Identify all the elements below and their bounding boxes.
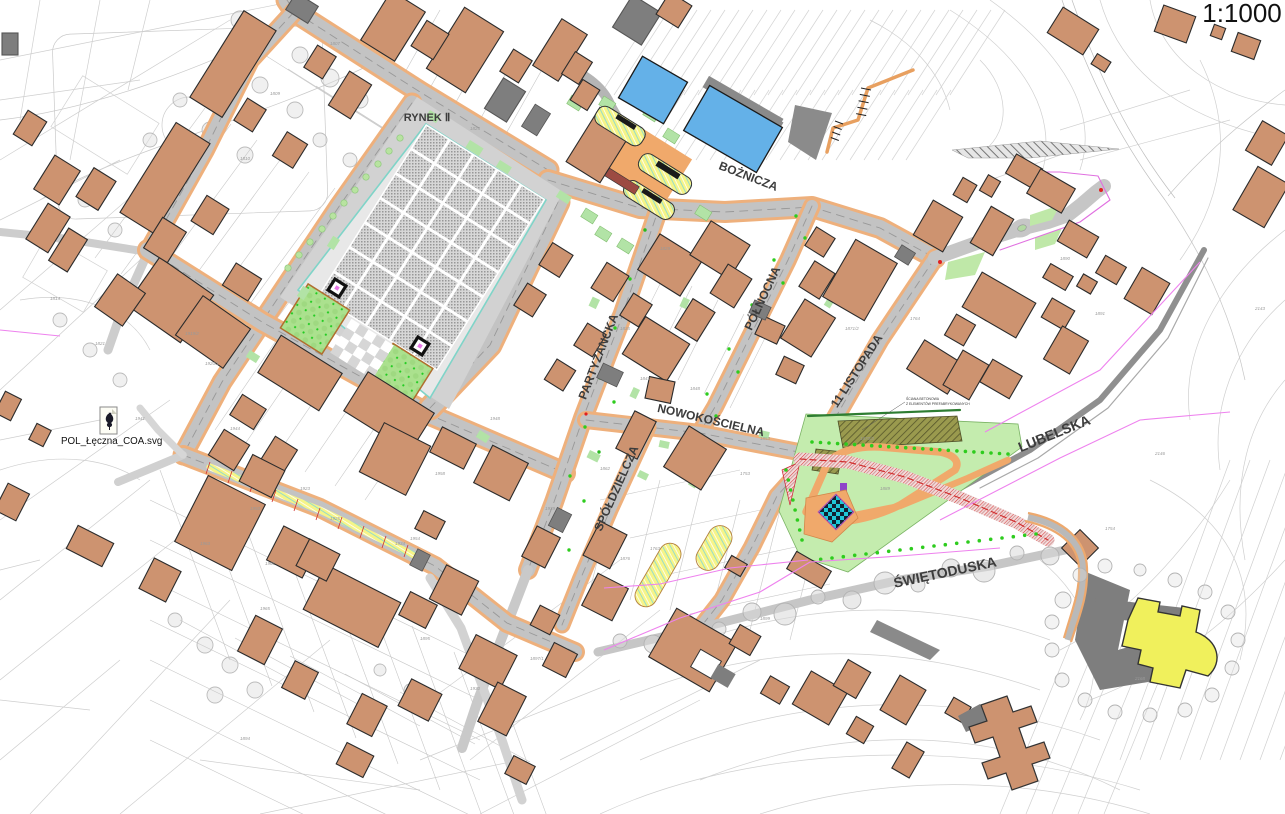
svg-text:1944: 1944 [230,426,241,431]
svg-text:1899: 1899 [760,616,771,621]
svg-text:RYNEK Ⅱ: RYNEK Ⅱ [404,112,451,124]
svg-text:1965: 1965 [260,606,271,611]
svg-text:1876: 1876 [620,556,631,561]
svg-text:1954: 1954 [410,536,421,541]
svg-text:1814: 1814 [50,296,61,301]
svg-text:1870/3: 1870/3 [860,436,874,441]
svg-text:1894: 1894 [240,736,251,741]
svg-text:1853: 1853 [760,436,771,441]
svg-text:1:1000: 1:1000 [1202,0,1282,28]
svg-text:1961: 1961 [265,561,276,566]
svg-text:1764: 1764 [910,316,921,321]
svg-text:1941: 1941 [135,416,146,421]
svg-text:2168: 2168 [1134,676,1146,681]
svg-text:1862: 1862 [600,466,611,471]
svg-text:Z ELEMENTÓW PREFABRYKOWANYCH: Z ELEMENTÓW PREFABRYKOWANYCH [906,401,970,406]
svg-text:1890: 1890 [1060,256,1071,261]
svg-text:1950: 1950 [250,506,261,511]
svg-text:1948: 1948 [490,416,501,421]
svg-text:1923: 1923 [300,486,311,491]
svg-text:1919/2: 1919/2 [185,331,199,336]
svg-text:POL_Łęczna_COA.svg: POL_Łęczna_COA.svg [61,436,162,447]
svg-text:1754: 1754 [1105,526,1116,531]
svg-text:1835: 1835 [620,326,631,331]
svg-text:1810: 1810 [240,156,251,161]
svg-text:1939: 1939 [545,506,556,511]
svg-text:1897/1: 1897/1 [530,656,544,661]
svg-text:1821: 1821 [95,341,106,346]
svg-text:1895: 1895 [420,636,431,641]
svg-text:1958: 1958 [435,471,446,476]
svg-text:1930: 1930 [470,686,481,691]
svg-text:2143: 2143 [1254,306,1266,311]
svg-text:2146: 2146 [1154,451,1166,456]
svg-text:1848: 1848 [690,386,701,391]
svg-text:1807: 1807 [330,41,341,46]
svg-text:1829: 1829 [660,246,671,251]
svg-text:1841: 1841 [640,376,651,381]
svg-text:1825: 1825 [470,126,481,131]
svg-text:1763: 1763 [650,546,661,551]
svg-text:1925: 1925 [330,516,341,521]
svg-text:1809: 1809 [270,91,281,96]
svg-text:1920/1: 1920/1 [205,361,219,366]
svg-text:1963: 1963 [200,541,211,546]
svg-text:1889: 1889 [880,486,891,491]
svg-text:1934: 1934 [395,541,406,546]
svg-text:1753: 1753 [740,471,751,476]
svg-text:1871/2: 1871/2 [845,326,859,331]
svg-text:1891: 1891 [1095,311,1106,316]
svg-text:ŚCIANA BETONOWA: ŚCIANA BETONOWA [906,396,940,401]
